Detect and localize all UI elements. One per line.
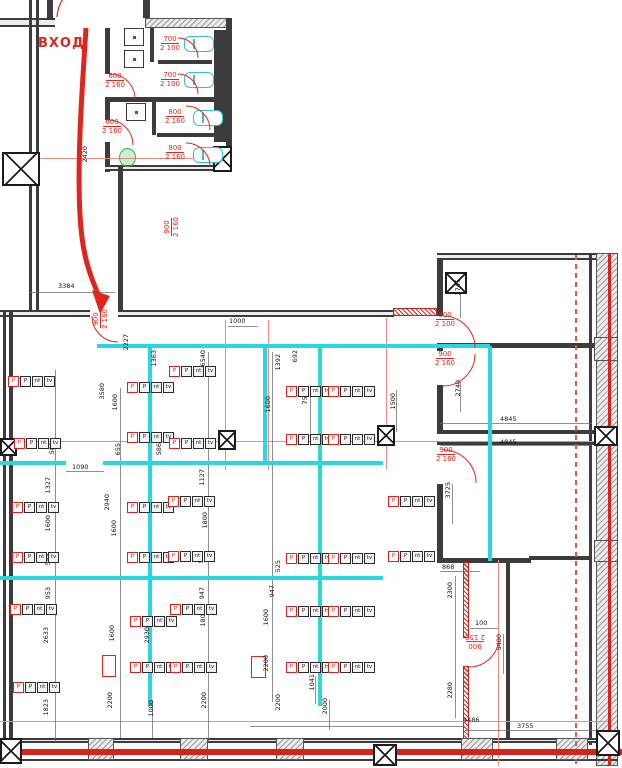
outlet-strip: PPnttv [328, 553, 378, 566]
toilet-icon [184, 36, 214, 52]
dimension-label: 2300 [447, 582, 454, 599]
dimension-label: 2633 [43, 627, 50, 644]
outlet-cell: P [10, 604, 21, 615]
outlet-strip: PPnttv [14, 438, 64, 451]
floor-plan: ВХОД 33841000109048454845868100448637552… [0, 0, 622, 768]
outlet-cell: P [12, 502, 23, 513]
outlet-cell: P [298, 606, 309, 617]
outlet-cell: P [180, 496, 191, 507]
door-height-label: 2 160 [98, 81, 132, 89]
door-size-label: 9002 160 [428, 350, 462, 367]
outlet-cell: nt [34, 604, 45, 615]
outlet-cell: nt [352, 386, 363, 397]
dimension-line [440, 571, 480, 572]
dimension-label: 2227 [123, 334, 130, 351]
outlet-cell: nt [194, 604, 205, 615]
outlet-cell: P [168, 496, 179, 507]
outlet-strip: PPnttv [127, 382, 177, 395]
partition-line [0, 461, 66, 465]
outlet-cell: nt [154, 616, 165, 627]
dimension-line [470, 628, 498, 629]
outlet-cell: tv [204, 551, 215, 562]
outlet-cell: P [139, 502, 150, 513]
dimension-label: 1000 [229, 318, 246, 325]
door-size-label: 8002 160 [158, 144, 192, 161]
column-marker [0, 738, 22, 764]
outlet-cell: nt [352, 553, 363, 564]
outlet-cell: tv [48, 502, 59, 513]
door-size-label: 9002 160 [163, 210, 180, 244]
dimension-label: 1600 [263, 609, 270, 626]
door-height-label: 2 160 [172, 210, 180, 244]
outlet-cell: nt [154, 662, 165, 673]
partition-line [97, 344, 490, 348]
outlet-strip: PPnttv [168, 551, 218, 564]
outlet-cell: P [142, 662, 153, 673]
outlet-cell: P [328, 434, 339, 445]
dimension-label: 1600 [265, 396, 272, 413]
dimension-label: 1127 [199, 469, 206, 486]
dimension-label: 2740 [455, 380, 462, 397]
dimension-label: 953 [45, 587, 52, 599]
dimension-line [228, 326, 258, 327]
outlet-cell: nt [151, 432, 162, 443]
door-size-label: 9002 150 [458, 633, 492, 650]
column-marker [377, 425, 395, 446]
outlet-cell: nt [194, 662, 205, 673]
outlet-cell: P [340, 553, 351, 564]
outlet-cell: P [24, 502, 35, 513]
dimension-line [329, 700, 330, 730]
outlet-cell: P [181, 438, 192, 449]
outlet-cell: nt [151, 502, 162, 513]
outlet-strip: PPnttv [328, 434, 378, 447]
outlet-cell: P [388, 551, 399, 562]
outlet-cell: nt [37, 682, 48, 693]
outlet-cell: P [182, 662, 193, 673]
dimension-label: 2930 [144, 627, 151, 644]
dimension-label: 5480 [496, 634, 503, 651]
outlet-cell: P [139, 382, 150, 393]
outlet-cell: nt [310, 553, 321, 564]
outlet-cell: tv [48, 552, 59, 563]
outlet-cell: nt [310, 434, 321, 445]
door-width-label: 600 [103, 118, 120, 127]
door-height-label: 2 100 [153, 80, 187, 88]
outlet-cell: P [13, 682, 24, 693]
partition-line [488, 346, 492, 561]
wall [105, 28, 110, 74]
outlet-strip: PPnttv [169, 366, 219, 379]
outlet-cell: nt [192, 551, 203, 562]
outlet-strip: PPnttv [13, 682, 63, 695]
outlet-cell: nt [192, 496, 203, 507]
dimension-label: 868 [442, 564, 454, 571]
dimension-label: 2200 [263, 655, 270, 672]
dimension-label: 525 [275, 560, 282, 572]
dimension-label: 2000 [322, 698, 329, 715]
outlet-cell: tv [166, 616, 177, 627]
outlet-cell: P [169, 438, 180, 449]
outlet-cell: nt [352, 434, 363, 445]
outlet-cell: P [180, 551, 191, 562]
door-width-label: 900 [436, 311, 453, 320]
outlet-cell: tv [364, 662, 375, 673]
dimension-label: 1090 [72, 464, 89, 471]
wall [118, 165, 123, 312]
outlet-strip: PPnttv [170, 604, 220, 617]
wall [47, 0, 53, 18]
outlet-cell: P [20, 376, 31, 387]
outlet-cell: tv [50, 438, 61, 449]
dimension-label: 655 [115, 443, 122, 455]
dimension-label: 2280 [447, 682, 454, 699]
outlet-cell: tv [205, 438, 216, 449]
outlet-cell: P [328, 662, 339, 673]
outlet-cell: nt [36, 552, 47, 563]
door-size-label: 6002 160 [98, 72, 132, 89]
door-height-label: 2 160 [101, 302, 109, 336]
outlet-cell: P [130, 662, 141, 673]
door-height-label: 2 150 [458, 633, 492, 641]
outlet-cell: P [340, 386, 351, 397]
sink-icon [126, 103, 146, 121]
outlet-cell: tv [204, 496, 215, 507]
outlet-cell: P [170, 662, 181, 673]
outlet-strip: PPnttv [328, 386, 378, 399]
outlet-strip: PPnttv [328, 606, 378, 619]
wall [589, 253, 592, 745]
outlet-cell: P [181, 366, 192, 377]
outlet-cell: P [286, 386, 297, 397]
door-height-label: 2 160 [158, 117, 192, 125]
sink-icon [124, 28, 144, 46]
axis-line [268, 320, 269, 470]
outlet-cell: tv [424, 551, 435, 562]
outlet-cell: P [286, 434, 297, 445]
dimension-label: 1363 [151, 350, 158, 367]
outlet-cell: tv [49, 682, 60, 693]
outlet-cell: nt [38, 438, 49, 449]
urinal-icon [119, 148, 136, 167]
outlet-strip: PPnttv [168, 496, 218, 509]
outlet-cell: nt [32, 376, 43, 387]
wall [152, 102, 156, 135]
dimension-label: 100 [475, 620, 487, 627]
outlet-cell: tv [206, 604, 217, 615]
door-size-label: 7002 100 [153, 71, 187, 88]
wall [3, 312, 6, 740]
outlet-cell: P [328, 553, 339, 564]
dimension-label: 4845 [500, 416, 517, 423]
column-marker [2, 152, 40, 186]
outlet-strip: PPnttv [388, 551, 438, 564]
partition-line [318, 346, 322, 706]
outlet-cell: P [388, 496, 399, 507]
outlet-cell: P [127, 502, 138, 513]
door-width-label: 800 [166, 108, 183, 117]
outlet-cell: tv [206, 662, 217, 673]
dimension-label: 1800 [202, 512, 209, 529]
outlet-cell: P [400, 496, 411, 507]
dimension-label: 1600 [111, 520, 118, 537]
dimension-label: 1327 [45, 477, 52, 494]
outlet-cell: P [286, 662, 297, 673]
outlet-cell: P [24, 552, 35, 563]
outlet-strip: PPnttv [12, 552, 62, 565]
dimension-label: 3755 [517, 723, 534, 730]
outlet-strip: PPnttv [10, 604, 60, 617]
dimension-label: 4486 [463, 717, 480, 724]
column-marker [596, 730, 620, 756]
entrance-label: ВХОД [38, 36, 85, 51]
dimension-label: 692 [292, 350, 299, 362]
wall [110, 97, 232, 102]
outlet-cell: nt [310, 386, 321, 397]
column-marker [218, 430, 236, 450]
door-width-label: 900 [163, 218, 172, 235]
outlet-cell: nt [310, 606, 321, 617]
dimension-label: 3725 [445, 482, 452, 499]
door-width-label: 900 [437, 446, 454, 455]
dimension-label: 6540 [200, 350, 207, 367]
axis-line [608, 253, 611, 766]
outlet-strip: PPnttv [170, 662, 220, 675]
wall [594, 540, 618, 562]
axis-line [386, 318, 387, 470]
outlet-cell: P [25, 682, 36, 693]
dimension-line [208, 352, 209, 742]
outlet-cell: P [340, 434, 351, 445]
outlet-cell: P [127, 382, 138, 393]
dimension-line [452, 484, 453, 524]
outlet-cell: P [139, 552, 150, 563]
door-height-label: 2 160 [158, 153, 192, 161]
outlet-cell: P [14, 438, 25, 449]
outlet-strip: PPnttv [130, 616, 180, 629]
dimension-label: 3580 [99, 383, 106, 400]
outlet-cell: nt [151, 382, 162, 393]
outlet-cell: P [127, 432, 138, 443]
door-height-label: 2 160 [95, 127, 129, 135]
outlet-cell: nt [36, 502, 47, 513]
outlet-cell: nt [412, 496, 423, 507]
outlet-cell: P [170, 604, 181, 615]
dimension-line [120, 388, 121, 738]
axis-line [575, 255, 577, 765]
dimension-label: 1600 [112, 394, 119, 411]
door-size-label: 9002 100 [428, 311, 462, 328]
dimension-line [503, 634, 504, 674]
dimension-line [455, 576, 456, 718]
door-width-label: 700 [161, 35, 178, 44]
outlet-cell: P [298, 434, 309, 445]
dimension-line [465, 730, 600, 731]
axis-line [498, 560, 499, 766]
door-height-label: 2 160 [428, 359, 462, 367]
outlet-cell: tv [163, 382, 174, 393]
outlet-strip: PPnttv [328, 662, 378, 675]
outlet-cell: P [286, 606, 297, 617]
outlet-cell: P [8, 376, 19, 387]
outlet-cell: P [298, 662, 309, 673]
outlet-cell: P [286, 553, 297, 564]
outlet-cell: P [400, 551, 411, 562]
outlet-cell: tv [46, 604, 57, 615]
outlet-cell: P [328, 606, 339, 617]
door-size-label: 9002 160 [92, 302, 109, 336]
door-swing-arc [57, 0, 96, 17]
wall [0, 18, 55, 27]
column-marker [594, 426, 618, 446]
outlet-cell: nt [193, 438, 204, 449]
dimension-label: 2745 [455, 279, 462, 296]
partition-line [0, 576, 383, 580]
door-size-label: 8002 160 [158, 108, 192, 125]
wall [145, 18, 232, 28]
outlet-cell: P [340, 662, 351, 673]
dimension-line [440, 423, 592, 424]
outlet-cell: P [127, 552, 138, 563]
dimension-label: 2940 [104, 494, 111, 511]
outlet-cell: nt [352, 662, 363, 673]
outlet-cell: P [130, 616, 141, 627]
outlet-cell: P [169, 366, 180, 377]
partition-line [148, 346, 152, 706]
red-hatched-wall [463, 562, 469, 638]
dimension-label: 1600 [109, 625, 116, 642]
outlet-cell: tv [44, 376, 55, 387]
outlet-strip: PPnttv [388, 496, 438, 509]
outlet-strip: PPnttv [8, 376, 58, 389]
wall [437, 260, 443, 316]
dimension-label: 1500 [390, 393, 397, 410]
dimension-label: 947 [199, 587, 206, 599]
dimension-label: 4845 [500, 439, 517, 446]
dimension-label: 2200 [107, 692, 114, 709]
door-width-label: 900 [92, 310, 101, 327]
door-size-label: 6002 160 [95, 118, 129, 135]
outlet-cell: nt [412, 551, 423, 562]
axis-line [0, 749, 622, 755]
outlet-cell: tv [364, 553, 375, 564]
outlet-cell: tv [424, 496, 435, 507]
outlet-cell: nt [151, 552, 162, 563]
dimension-label: 2200 [201, 692, 208, 709]
wall [594, 337, 618, 361]
dimension-label: 2200 [275, 694, 282, 711]
outlet-cell: nt [352, 606, 363, 617]
wall [157, 133, 232, 137]
escape-route-overlay [0, 0, 622, 768]
door-size-label: 7002 100 [153, 35, 187, 52]
door-width-label: 800 [166, 144, 183, 153]
dimension-label: 1000 [148, 700, 155, 717]
wall [118, 310, 394, 317]
dimension-label: 1392 [275, 354, 282, 371]
wall [529, 556, 591, 560]
outlet-cell: P [22, 604, 33, 615]
outlet-cell: P [298, 553, 309, 564]
wall [158, 60, 212, 64]
toilet-icon [193, 147, 223, 163]
outlet-cell: P [340, 606, 351, 617]
wall [0, 310, 90, 317]
outlet-cell: nt [310, 662, 321, 673]
outlet-cell: P [298, 386, 309, 397]
wall [437, 385, 443, 431]
outlet-cell: P [12, 552, 23, 563]
toilet-icon [193, 110, 223, 126]
floor-box [102, 655, 116, 677]
outlet-cell: tv [364, 606, 375, 617]
door-height-label: 2 100 [428, 320, 462, 328]
dimension-line [66, 471, 104, 472]
door-height-label: 2 160 [429, 455, 463, 463]
outlet-strip: PPnttv [169, 438, 219, 451]
door-width-label: 900 [436, 350, 453, 359]
dimension-line [272, 352, 273, 702]
outlet-cell: P [139, 432, 150, 443]
wall [596, 253, 618, 766]
toilet-icon [184, 72, 214, 88]
dimension-label: 947 [269, 585, 276, 597]
dimension-label: 3384 [58, 283, 75, 290]
outlet-cell: P [182, 604, 193, 615]
door-width-label: 700 [161, 71, 178, 80]
dimension-label: 1041 [309, 674, 316, 691]
wall [506, 562, 510, 742]
door-width-label: 900 [466, 641, 483, 650]
outlet-cell: P [26, 438, 37, 449]
dimension-label: 1600 [45, 515, 52, 532]
outlet-cell: P [168, 551, 179, 562]
door-size-label: 9002 160 [429, 446, 463, 463]
outlet-cell: tv [364, 434, 375, 445]
outlet-strip: PPnttv [12, 502, 62, 515]
outlet-cell: tv [364, 386, 375, 397]
column-marker [373, 744, 397, 766]
door-height-label: 2 100 [153, 44, 187, 52]
dimension-label: 1823 [43, 699, 50, 716]
outlet-cell: P [142, 616, 153, 627]
outlet-cell: nt [193, 366, 204, 377]
dimension-label: 2420 [82, 146, 89, 163]
dimension-line [30, 292, 115, 293]
dimension-line [250, 726, 464, 727]
outlet-cell: tv [205, 366, 216, 377]
outlet-cell: P [328, 386, 339, 397]
partition-line [103, 461, 383, 465]
sink-icon [124, 50, 144, 68]
door-width-label: 600 [106, 72, 123, 81]
wall [143, 0, 150, 18]
